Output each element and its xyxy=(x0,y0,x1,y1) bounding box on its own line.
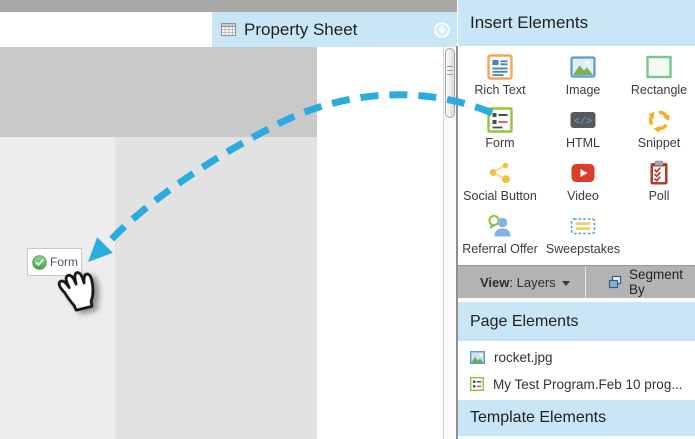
element-html[interactable]: </> HTML xyxy=(542,102,624,155)
element-label: Poll xyxy=(649,189,670,203)
segment-by-label: Segment By xyxy=(629,267,695,297)
list-item-my-test-program[interactable]: My Test Program.Feb 10 prog... xyxy=(470,373,695,395)
element-label: Sweepstakes xyxy=(546,242,620,256)
element-label: HTML xyxy=(566,136,600,150)
form-icon xyxy=(487,107,513,133)
list-item-rocket-jpg[interactable]: rocket.jpg xyxy=(470,346,695,368)
element-label: Rich Text xyxy=(474,83,525,97)
svg-text:</>: </> xyxy=(574,116,592,128)
dropped-form-element[interactable]: Form xyxy=(27,248,82,276)
page-elements-header: Page Elements xyxy=(458,302,695,341)
referral-offer-icon xyxy=(487,213,513,239)
element-poll[interactable]: Poll xyxy=(624,155,694,208)
table-grid-icon xyxy=(221,23,236,36)
element-referral-offer[interactable]: Referral Offer xyxy=(458,208,542,261)
property-sheet-scrollbar-thumb[interactable] xyxy=(445,48,455,118)
rectangle-icon xyxy=(646,54,672,80)
view-layers-dropdown[interactable]: View: Layers xyxy=(458,266,585,298)
form-file-icon xyxy=(470,377,484,391)
element-rectangle[interactable]: Rectangle xyxy=(624,49,694,102)
element-form[interactable]: Form xyxy=(458,102,542,155)
element-label: Snippet xyxy=(638,136,680,150)
rich-text-icon xyxy=(487,54,513,80)
element-label: Form xyxy=(485,136,514,150)
html-icon: </> xyxy=(570,107,596,133)
element-sweepstakes[interactable]: Sweepstakes xyxy=(542,208,624,261)
view-bar: View: Layers Segment By xyxy=(458,266,695,298)
canvas-hero-block[interactable] xyxy=(0,47,317,137)
element-social-button[interactable]: Social Button xyxy=(458,155,542,208)
property-sheet-header[interactable]: Property Sheet xyxy=(212,12,457,47)
page-elements-title: Page Elements xyxy=(470,313,579,331)
element-rich-text[interactable]: Rich Text xyxy=(458,49,542,102)
page-elements-list: rocket.jpg My Test Program.Feb 10 prog..… xyxy=(458,341,695,400)
element-label: Video xyxy=(567,189,599,203)
element-video[interactable]: Video xyxy=(542,155,624,208)
tab-segment-by[interactable]: Segment By xyxy=(586,266,695,298)
download-circle-icon[interactable] xyxy=(434,22,450,38)
list-item-label: My Test Program.Feb 10 prog... xyxy=(493,377,683,392)
list-item-label: rocket.jpg xyxy=(494,350,553,365)
canvas-middle-column[interactable] xyxy=(115,137,317,439)
canvas-left-column[interactable] xyxy=(0,137,115,439)
canvas-top-bar xyxy=(0,0,457,12)
element-label: Referral Offer xyxy=(462,242,538,256)
element-snippet[interactable]: Snippet xyxy=(624,102,694,155)
page-editor: Property Sheet Form Insert Elements xyxy=(0,0,695,439)
property-sheet-title: Property Sheet xyxy=(244,20,426,40)
insert-elements-grid: Rich Text Image Rectangle xyxy=(458,46,695,265)
view-value: Layers xyxy=(517,275,556,290)
template-elements-header: Template Elements xyxy=(458,400,695,436)
element-label: Rectangle xyxy=(631,83,687,97)
element-image[interactable]: Image xyxy=(542,49,624,102)
check-circle-icon xyxy=(32,255,47,270)
insert-elements-title: Insert Elements xyxy=(470,13,588,33)
social-button-icon xyxy=(487,160,513,186)
view-separator: : xyxy=(509,275,516,290)
template-elements-title: Template Elements xyxy=(470,409,606,427)
sweepstakes-icon xyxy=(570,213,596,239)
cascade-windows-icon xyxy=(608,275,622,289)
element-label: Image xyxy=(566,83,601,97)
snippet-icon xyxy=(646,107,672,133)
dropped-form-label: Form xyxy=(50,255,78,269)
property-sheet-body xyxy=(317,47,443,439)
image-icon xyxy=(570,54,596,80)
chevron-down-icon xyxy=(562,281,570,286)
poll-icon xyxy=(646,160,672,186)
scrollbar-grip-icon xyxy=(447,66,453,75)
video-icon xyxy=(570,160,596,186)
insert-elements-header: Insert Elements xyxy=(458,0,695,46)
image-file-icon xyxy=(470,351,485,364)
element-label: Social Button xyxy=(463,189,537,203)
view-label: View xyxy=(480,275,509,290)
